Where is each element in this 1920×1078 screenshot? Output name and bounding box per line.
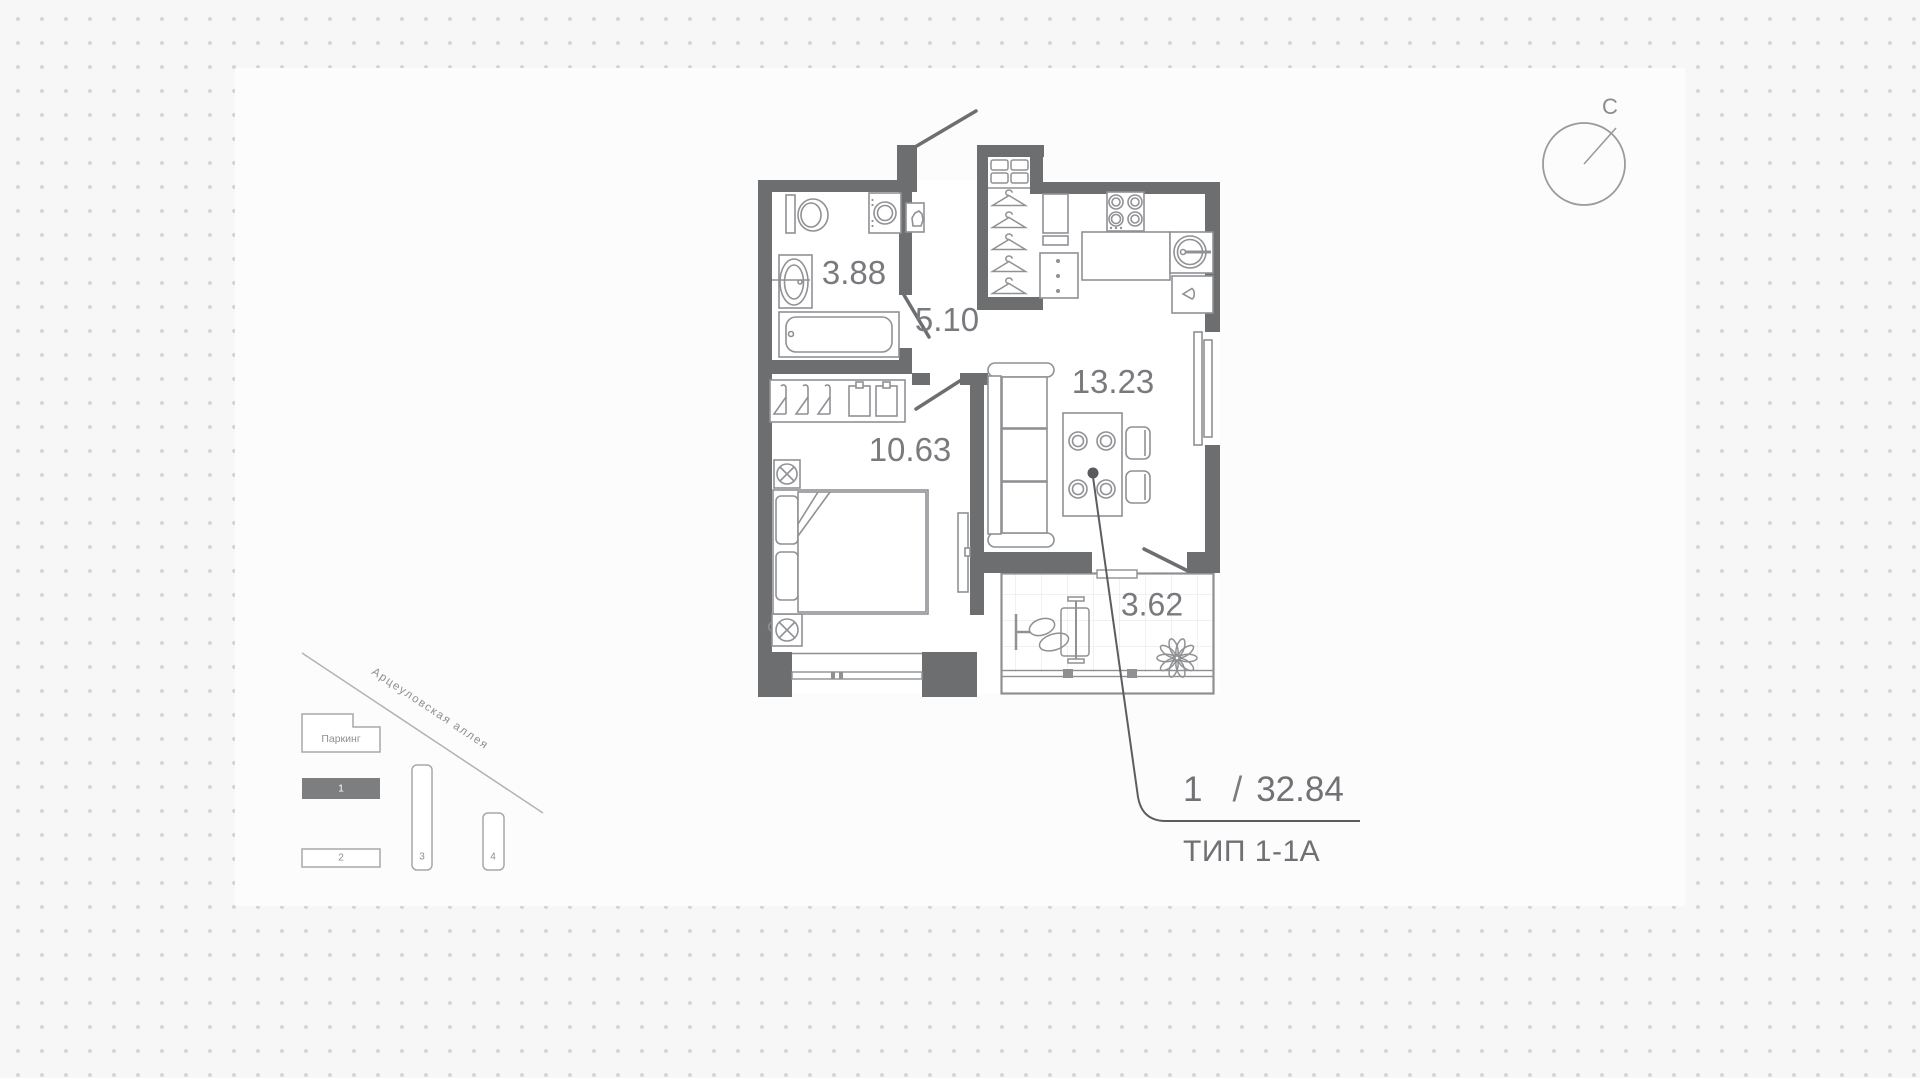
bathtub-icon: [779, 312, 899, 357]
kitchen-sink-icon: [1170, 232, 1213, 273]
building-3-label: 3: [419, 852, 425, 863]
site-minimap-drawing: [295, 645, 555, 880]
storage-box-icon: [849, 386, 870, 416]
site-minimap: Арцеуловская аллея Паркинг 1 2 3 4: [295, 645, 555, 880]
washing-machine-icon: [869, 193, 901, 233]
total-area: 32.84: [1256, 772, 1344, 807]
apartment-summary: 1 / 32.84: [1183, 772, 1344, 807]
building-1-label: 1: [338, 784, 344, 795]
stove-icon: [1107, 192, 1144, 231]
apartment-type-label: ТИП 1-1А: [1183, 835, 1320, 869]
page-background: { "compass": { "label": "С" }, "plan": {…: [0, 0, 1920, 1078]
sofa-icon: [988, 363, 1054, 547]
room-label-bedroom: 10.63: [869, 431, 952, 469]
room-label-bathroom: 3.88: [822, 254, 886, 292]
bed-icon: [773, 490, 928, 614]
room-label-kitchen-living: 13.23: [1072, 363, 1155, 401]
rooms-count: 1: [1183, 772, 1202, 807]
parking-label: Паркинг: [321, 733, 360, 745]
lamp-icon: [769, 614, 802, 646]
dishwasher-icon: [1172, 276, 1213, 313]
building-2-label: 2: [338, 853, 344, 864]
shelf-icon: [906, 203, 924, 232]
dining-table-icon: [1063, 413, 1122, 516]
tv-icon: [958, 513, 970, 592]
pillow-icon: [776, 496, 798, 544]
room-label-hallway: 5.10: [915, 301, 979, 339]
chair-icon: [1126, 471, 1150, 503]
room-label-balcony: 3.62: [1121, 587, 1183, 624]
closet-icon: [770, 380, 905, 422]
chair-icon: [1126, 427, 1150, 459]
separator: /: [1232, 772, 1242, 807]
floor-plan: 3.88 5.10 10.63 13.23 3.62: [755, 100, 1225, 700]
storage-box-icon: [876, 386, 897, 416]
entrance-door: [915, 111, 976, 147]
kitchen-cabinet-icon: [1040, 253, 1078, 298]
pillow-icon: [776, 552, 798, 600]
balcony-threshold: [1097, 570, 1137, 578]
compass-north-label: С: [1602, 94, 1618, 120]
fridge-icon: [1043, 194, 1068, 245]
building-4-label: 4: [490, 852, 496, 863]
compass-icon: [1540, 120, 1630, 210]
lamp-icon: [774, 460, 800, 488]
